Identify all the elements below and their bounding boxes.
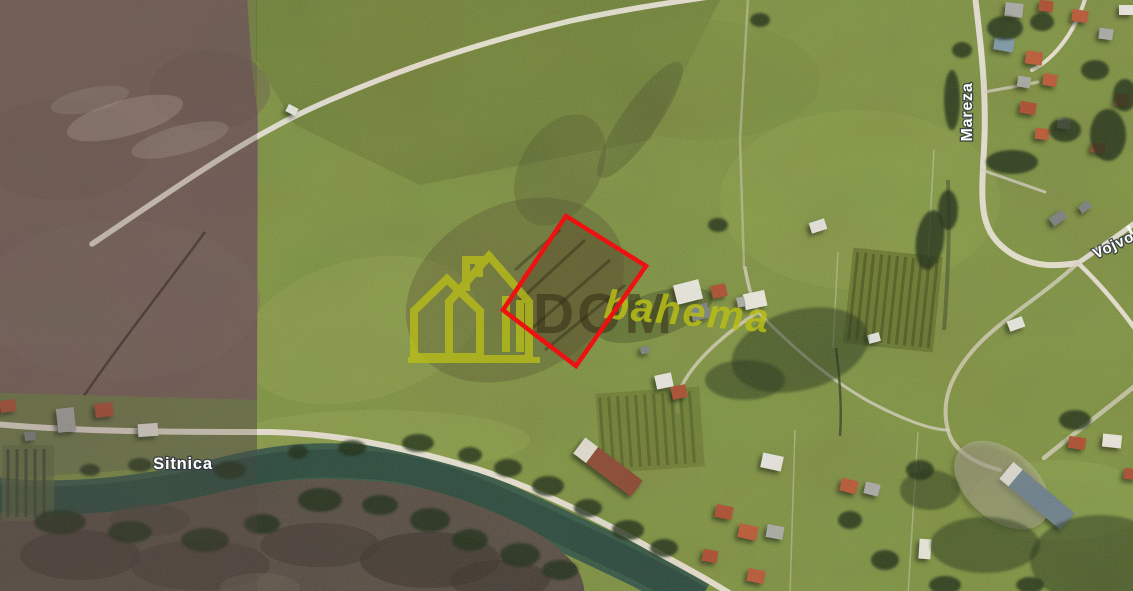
imagery-seam-tint xyxy=(0,0,257,591)
satellite-map-view[interactable]: DOM bahema Sitnica Mareza Vojvode xyxy=(0,0,1133,591)
road-label-mareza: Mareza xyxy=(959,82,976,141)
satellite-imagery: DOM bahema Sitnica Mareza Vojvode xyxy=(0,0,1133,591)
river-label: Sitnica xyxy=(153,455,213,473)
